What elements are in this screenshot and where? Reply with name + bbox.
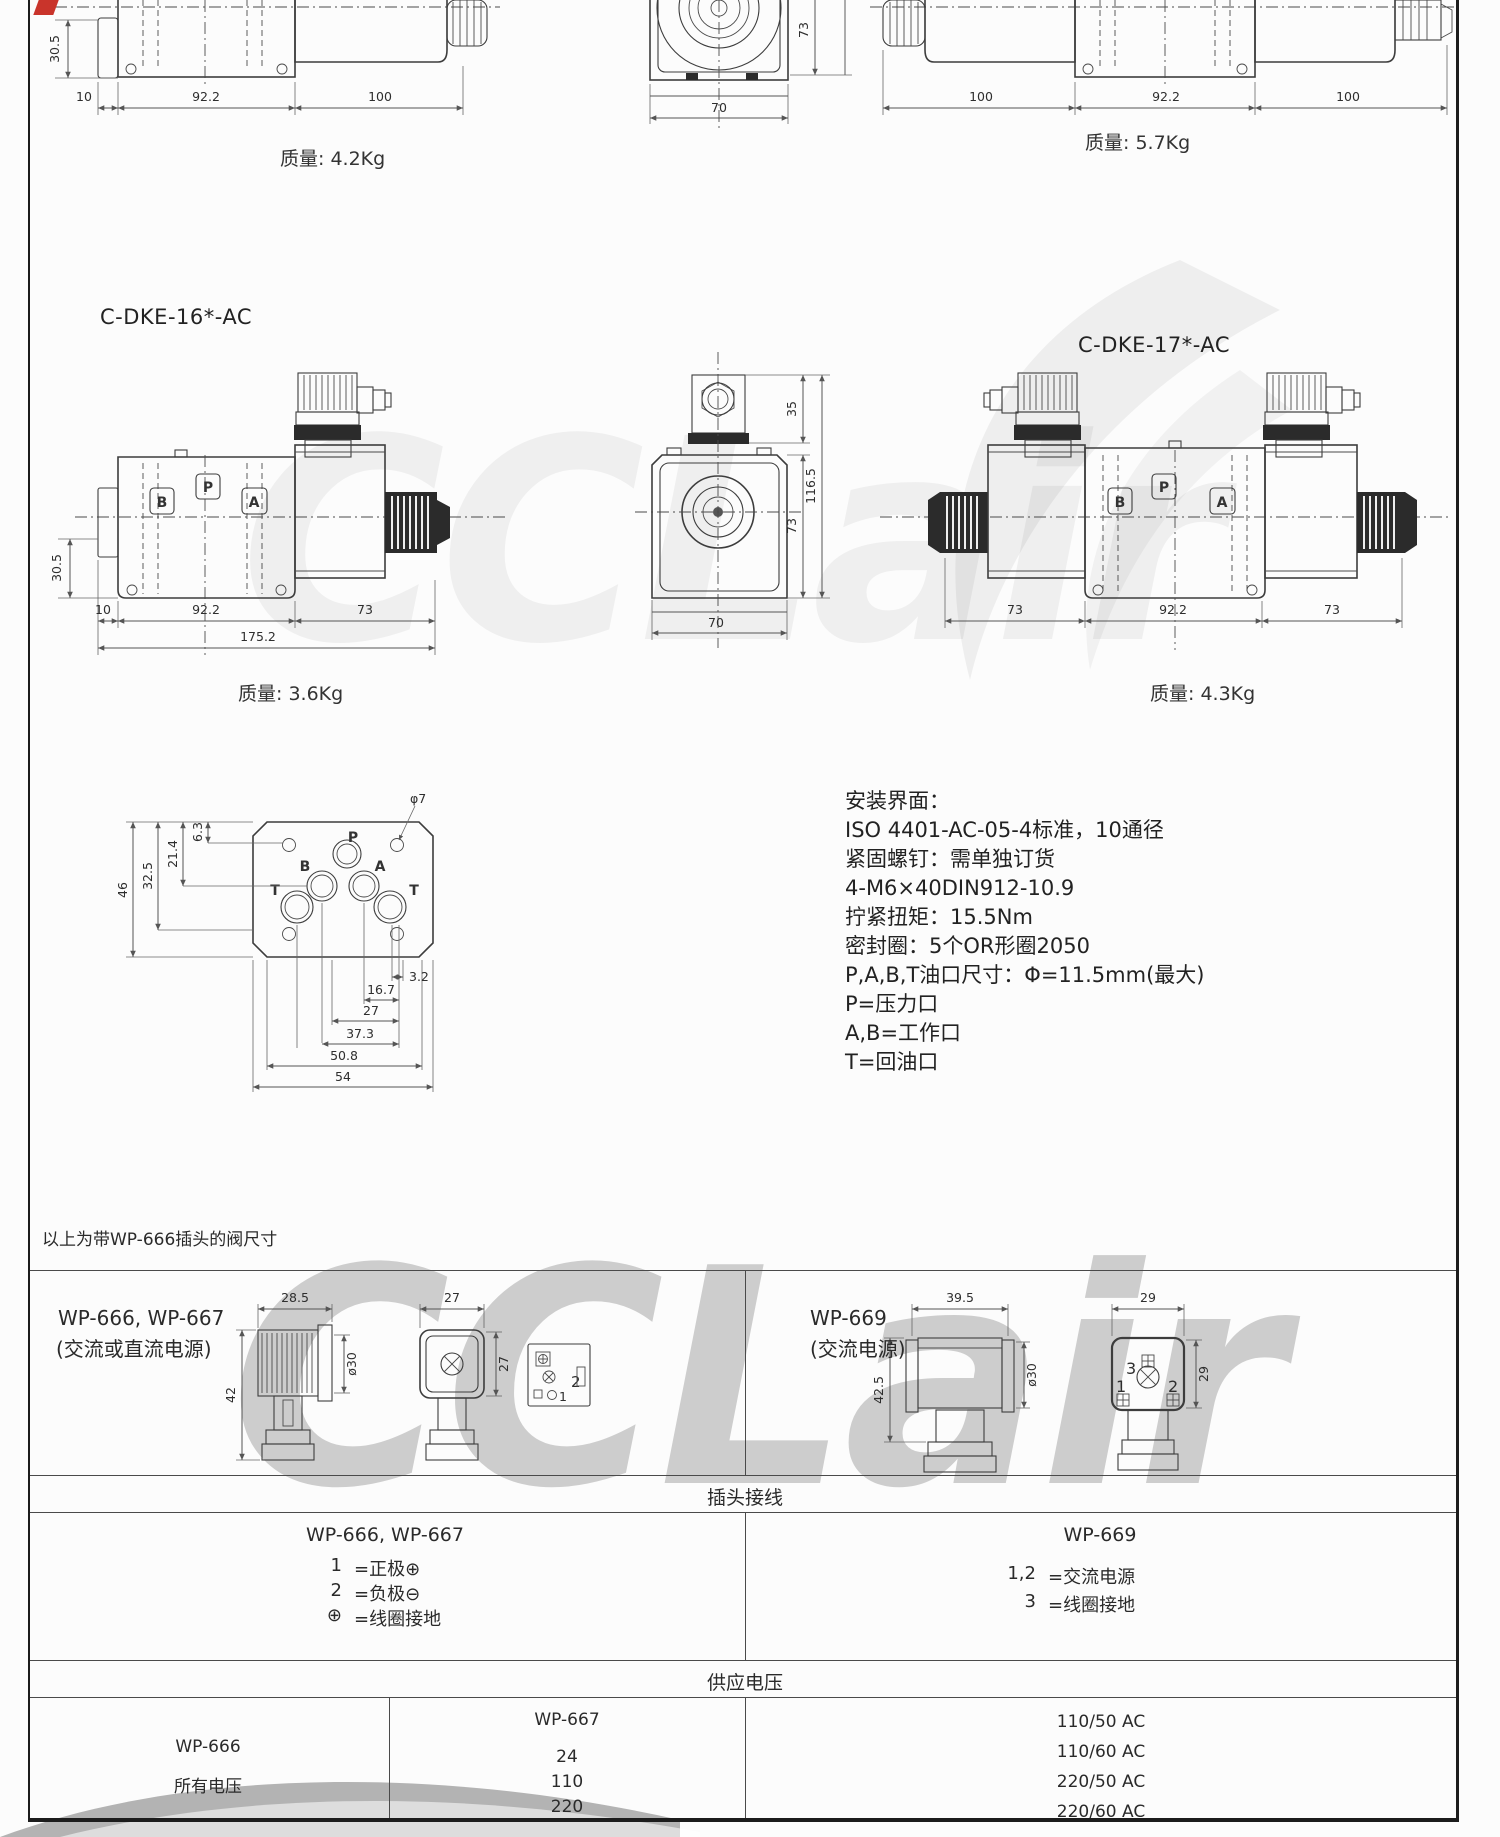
svg-text:175.2: 175.2 [240,629,276,644]
svg-text:10: 10 [76,89,92,104]
svg-text:30.5: 30.5 [49,554,64,582]
voltage-divider-2 [745,1697,746,1818]
valve17-title: C-DKE-17*-AC [1078,333,1230,357]
svg-text:37.3: 37.3 [346,1026,374,1041]
voltage-divider-1 [389,1697,390,1818]
weight-valve17: 质量: 4.3Kg [1150,679,1255,706]
page-border-right [1456,0,1459,1822]
voltage-col2-title: WP-667 [467,1710,667,1730]
svg-text:73: 73 [1324,602,1340,617]
pin-number: ⊕ [312,1605,342,1631]
svg-text:1: 1 [559,1389,567,1404]
voltage-col2-value: 110 [467,1772,667,1792]
svg-text:6.3: 6.3 [190,822,205,842]
voltage-band-bottom [28,1697,1459,1698]
voltage-col2-value: 220 [467,1797,667,1817]
svg-text:2: 2 [571,1373,581,1391]
table-top-line [28,1270,1459,1271]
info-line: 安装界面： [845,787,1204,816]
info-line: 4-M6×40DIN912-10.9 [845,874,1204,903]
svg-text:21.4: 21.4 [165,840,180,868]
wiring-left-row: 1 =正极⊕ [312,1555,420,1581]
wiring-right-row: 1,2 =交流电源 [1000,1563,1135,1589]
svg-text:3: 3 [1126,1359,1136,1378]
page-border-left [28,0,30,1822]
wp669-pin-face: 29 3 1 2 29 [1112,1290,1211,1470]
pin-function: =线圈接地 [1048,1591,1135,1617]
top-row-drawings: 30.5 10 92.2 100 70 [30,0,1460,175]
ports: P B A T T [270,830,419,923]
svg-text:30.5: 30.5 [47,35,62,63]
table-divider [745,1270,746,1475]
svg-text:27: 27 [496,1356,511,1372]
svg-text:70: 70 [711,100,727,115]
coil-nut [447,0,487,46]
info-line: 密封圈：5个OR形圈2050 [845,932,1204,961]
page-border-bottom [28,1818,1459,1822]
wiring-band-top [28,1475,1459,1476]
valve17-drawing: B P A 73 92.2 73 [860,300,1460,710]
svg-text:100: 100 [969,89,993,104]
wiring-divider [745,1512,746,1660]
svg-text:92.2: 92.2 [192,89,220,104]
svg-text:28.5: 28.5 [281,1290,309,1305]
voltage-col3-value: 220/50 AC [1001,1772,1201,1792]
voltage-col3-value: 110/50 AC [1001,1712,1201,1732]
wp666-pin-layout: 1 2 [528,1344,590,1406]
voltage-col2-value: 24 [467,1747,667,1767]
svg-text:10: 10 [95,602,111,617]
svg-text:16.7: 16.7 [367,982,395,997]
top-left-valve-drawing: 30.5 10 92.2 100 [47,0,500,115]
voltage-col1-title: WP-666 [108,1737,308,1757]
svg-text:73: 73 [357,602,373,617]
voltage-col3-value: 110/60 AC [1001,1742,1201,1762]
svg-text:A: A [375,859,386,875]
weight-valve16: 质量: 3.6Kg [238,679,343,706]
coil-nut-left [928,492,988,553]
svg-text:B: B [157,495,168,511]
right-cell-subtitle: (交流电源) [810,1334,906,1365]
endview-drawing: 70 35 116.5 73 [540,340,850,650]
pin-function: =正极⊕ [354,1555,420,1581]
wiring-right-row: 3 =线圈接地 [1000,1591,1135,1617]
svg-text:54: 54 [335,1069,351,1084]
svg-text:B: B [1115,495,1126,511]
svg-text:100: 100 [368,89,392,104]
svg-text:100: 100 [1336,89,1360,104]
info-line: 拧紧扭矩：15.5Nm [845,903,1204,932]
wiring-header: 插头接线 [30,1483,1460,1510]
top-connector [688,375,749,444]
svg-text:T: T [270,883,280,899]
svg-text:116.5: 116.5 [803,468,818,504]
note-wp666: 以上为带WP-666插头的阀尺寸 [42,1225,277,1250]
left-cell-subtitle: (交流或直流电源) [56,1334,212,1365]
valve16-title: C-DKE-16*-AC [100,305,252,329]
dimensions: 70 35 116.5 73 [652,375,830,640]
info-line: P=压力口 [845,990,1204,1019]
svg-text:32.5: 32.5 [140,862,155,890]
dimensions: 30.5 10 92.2 100 [47,20,463,115]
wp669-front-view: 39.5 42.5 ø30 [871,1290,1039,1472]
svg-text:29: 29 [1196,1366,1211,1382]
info-line: A,B=工作口 [845,1019,1204,1048]
svg-text:A: A [249,495,260,511]
mounting-info-block: 安装界面： ISO 4401-AC-05-4标准，10通径 紧固螺钉：需单独订货… [845,787,1204,1077]
svg-text:P: P [348,830,358,846]
pin-number: 1,2 [1000,1563,1036,1589]
wiring-left-title: WP-666, WP-667 [285,1524,485,1546]
port-letters: B P A [1108,474,1235,514]
coil-nut-right [1357,492,1417,553]
svg-text:P: P [203,480,213,496]
dimensions: 73 92.2 73 [945,558,1402,628]
voltage-col1-value: 所有电压 [108,1772,308,1797]
svg-text:73: 73 [796,22,811,38]
datasheet-page: CCLair CCLair [0,0,1500,1837]
pin-function: =负极⊖ [354,1580,420,1606]
interface-diagram: P B A T T φ7 6.3 21.4 32.5 46 [100,690,490,1110]
svg-text:50.8: 50.8 [330,1048,358,1063]
svg-text:T: T [409,883,419,899]
pin-function: =交流电源 [1048,1563,1135,1589]
dimensions-bottom: 3.2 16.7 27 37.3 50.8 54 [253,903,433,1092]
svg-text:27: 27 [363,1003,379,1018]
svg-text:92.2: 92.2 [1152,89,1180,104]
svg-text:46: 46 [115,882,130,898]
svg-text:3.2: 3.2 [409,969,429,984]
svg-text:92.2: 92.2 [192,602,220,617]
top-right-valve-drawing: 100 92.2 100 [870,0,1455,115]
svg-text:P: P [1159,480,1169,496]
pin-number: 3 [1000,1591,1036,1617]
callout-phi7: φ7 [399,791,426,840]
voltage-band-top [28,1660,1459,1661]
svg-text:39.5: 39.5 [946,1290,974,1305]
svg-text:2: 2 [1168,1377,1178,1396]
svg-text:35: 35 [784,401,799,417]
svg-text:73: 73 [1007,602,1023,617]
svg-text:A: A [1217,495,1228,511]
svg-text:27: 27 [444,1290,460,1305]
svg-text:B: B [300,859,311,875]
valve16-drawing: B P A 30.5 10 92.2 73 175.2 [30,300,510,710]
wiring-band-bottom [28,1512,1459,1513]
dimensions: 30.5 10 92.2 73 175.2 [49,539,435,655]
svg-text:φ7: φ7 [410,791,426,806]
right-cell-title: WP-669 [810,1303,887,1334]
wiring-right-title: WP-669 [1000,1524,1200,1546]
left-cell-title: WP-666, WP-667 [58,1303,224,1334]
svg-text:70: 70 [708,615,724,630]
svg-text:29: 29 [1140,1290,1156,1305]
svg-text:42.5: 42.5 [871,1376,886,1404]
svg-text:1: 1 [1116,1377,1126,1396]
coil-nut [385,492,450,553]
svg-text:ø30: ø30 [1024,1363,1039,1387]
info-line: T=回油口 [845,1048,1204,1077]
voltage-header: 供应电压 [30,1668,1460,1695]
top-middle-endview-drawing: 70 73 [650,0,852,130]
weight-top-right: 质量: 5.7Kg [1085,128,1190,155]
wiring-left-row: 2 =负极⊖ [312,1580,420,1606]
svg-text:ø30: ø30 [344,1352,359,1376]
pin-number: 1 [312,1555,342,1581]
wp666-side-view: 27 27 [420,1290,511,1460]
info-line: P,A,B,T油口尺寸：Φ=11.5mm(最大) [845,961,1204,990]
info-line: 紧固螺钉：需单独订货 [845,845,1204,874]
info-line: ISO 4401-AC-05-4标准，10通径 [845,816,1204,845]
svg-text:92.2: 92.2 [1159,602,1187,617]
wiring-left-row: ⊕ =线圈接地 [312,1605,441,1631]
svg-text:73: 73 [784,518,799,534]
weight-top-left: 质量: 4.2Kg [280,144,385,171]
pin-function: =线圈接地 [354,1605,441,1631]
wp666-front-view: 28.5 42 ø30 [223,1290,359,1460]
coil-nut-right [1395,0,1452,40]
pin-number: 2 [312,1580,342,1606]
svg-text:42: 42 [223,1387,238,1403]
port-letters: B P A [150,474,267,514]
